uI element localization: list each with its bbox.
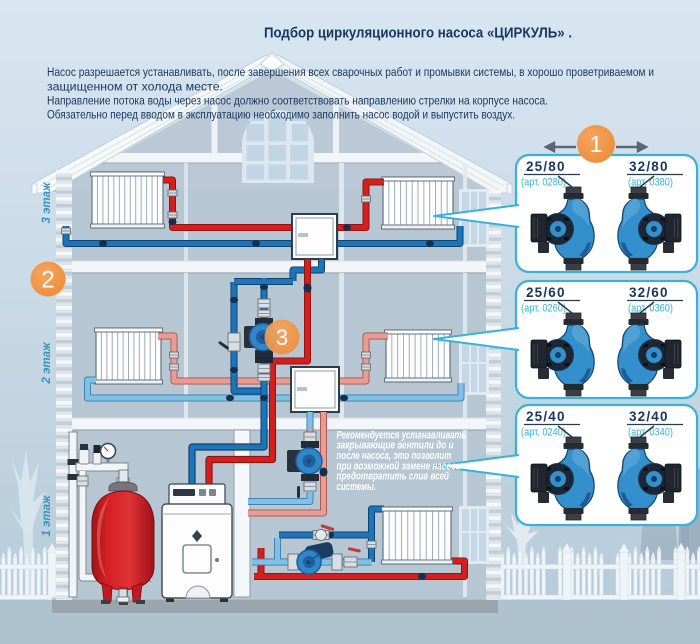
svg-text:Подбор циркуляционного насоса: Подбор циркуляционного насоса «ЦИРКУЛЬ» … <box>264 25 572 42</box>
svg-text:(арт. 0260): (арт. 0260) <box>521 303 566 315</box>
svg-text:32/60: 32/60 <box>629 285 668 300</box>
svg-text:2: 2 <box>41 267 54 294</box>
svg-text:3 этаж: 3 этаж <box>41 182 53 224</box>
svg-text:защищенном от холода месте.: защищенном от холода месте. <box>47 80 223 94</box>
svg-text:Обязательно перед вводом в экс: Обязательно перед вводом в эксплуатацию … <box>47 108 515 122</box>
svg-text:25/60: 25/60 <box>526 285 565 300</box>
svg-text:Направление потока воды через: Направление потока воды через насос долж… <box>47 94 548 108</box>
svg-text:3: 3 <box>276 325 288 350</box>
svg-text:25/40: 25/40 <box>526 409 565 424</box>
svg-text:25/80: 25/80 <box>526 159 565 174</box>
svg-text:(арт. 0280): (арт. 0280) <box>521 177 566 189</box>
svg-text:Насос разрешается устанавливат: Насос разрешается устанавливать, после з… <box>47 65 654 79</box>
svg-text:1 этаж: 1 этаж <box>41 495 53 537</box>
svg-text:системы.: системы. <box>337 481 376 493</box>
svg-text:(арт. 0240): (арт. 0240) <box>521 427 566 439</box>
svg-text:2 этаж: 2 этаж <box>41 342 53 385</box>
svg-text:1: 1 <box>590 131 603 157</box>
svg-text:32/80: 32/80 <box>629 159 668 174</box>
svg-text:32/40: 32/40 <box>629 409 668 424</box>
